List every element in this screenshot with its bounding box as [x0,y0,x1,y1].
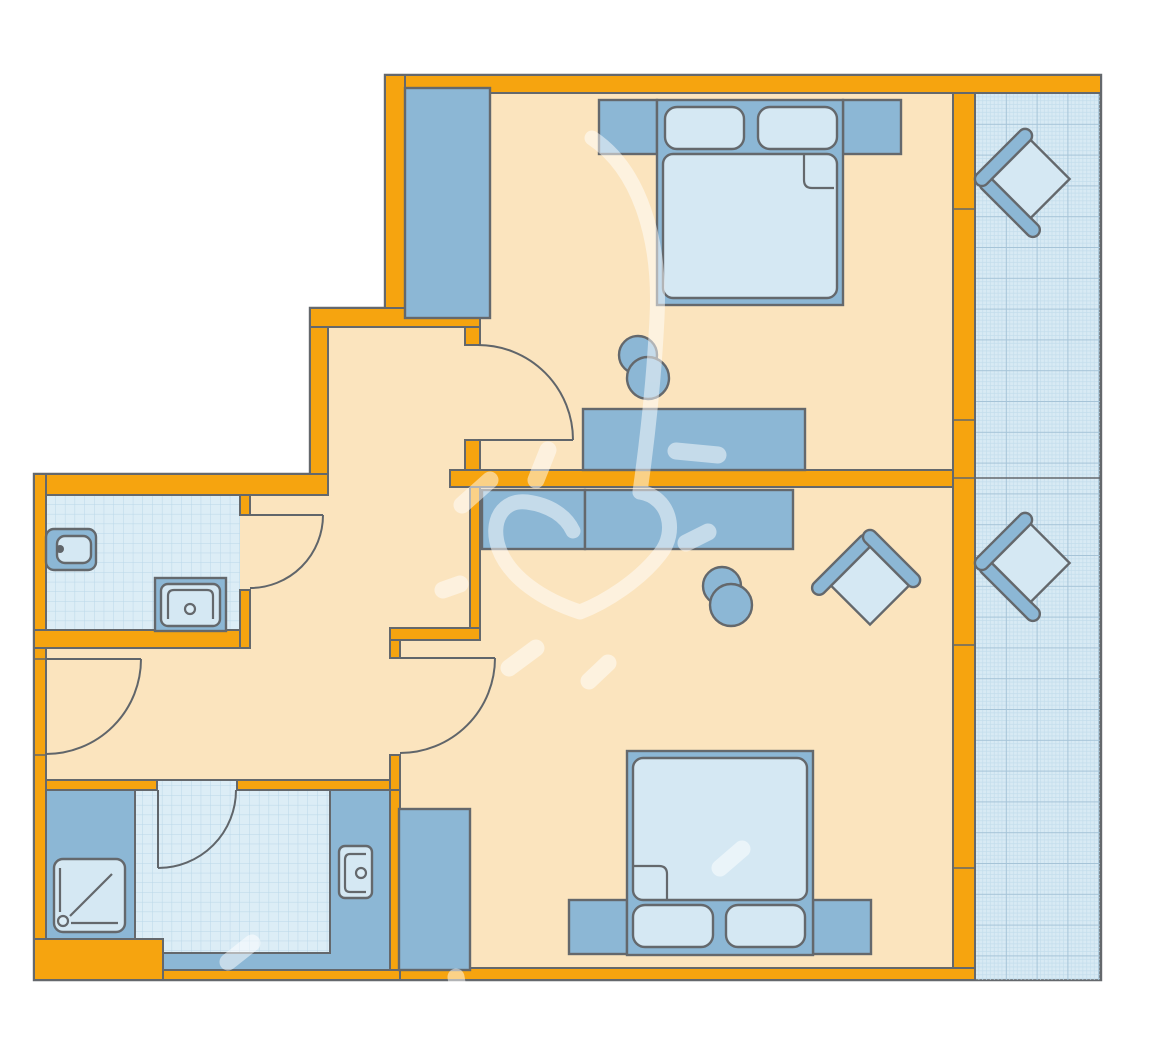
wall-door2-top-stub [390,640,400,658]
wall-bedroom1-west [385,75,405,318]
wall-door1-top-stub [465,327,480,345]
bathroom-2-tile-grid [135,780,330,953]
floor-plan-drawing [0,0,1161,1057]
wardrobe-bedroom-2 [399,809,470,970]
wall-top [385,75,1101,93]
shower-drain [58,916,68,926]
nightstand-right [813,900,871,954]
wall-hall-south-west [46,780,157,790]
mattress [633,758,807,900]
wall-west-outer [34,474,46,980]
basin-drain [185,604,195,614]
wall-bathroom1-east-upper [240,495,250,515]
pillow [758,107,837,149]
toilet-flush-dot [56,545,64,553]
floor-plan-canvas [0,0,1161,1057]
washbasin-bathroom-2 [339,846,372,898]
wall-bedroom2-west [470,487,480,628]
wall-bedroom2-south [400,968,975,980]
wall-bedroom2-step [390,628,480,640]
wall-hall-south-east [237,780,400,790]
shower [54,859,125,932]
pillow [665,107,744,149]
wall-bottom-left-block [34,939,163,980]
chair-seat [710,584,752,626]
wall-door2-bottom-stub [390,755,400,790]
nightstand-right [843,100,901,154]
wall-bathroom1-south [34,630,250,648]
mattress [663,154,837,298]
pillow [633,905,713,947]
washbasin-bathroom-1 [155,578,226,631]
pillow [726,905,805,947]
nightstand-left [569,900,627,954]
wall-westwing-north [34,474,328,495]
wall-room-divider [450,470,960,487]
basin-drain [356,868,366,878]
wall-bathroom2-south [163,970,400,980]
wall-right-balcony [953,93,975,980]
wardrobe-bedroom-1 [405,88,490,318]
wall-bathroom1-east-lower [240,590,250,648]
wall-hall-west-upper [310,327,328,495]
toilet [46,529,96,570]
